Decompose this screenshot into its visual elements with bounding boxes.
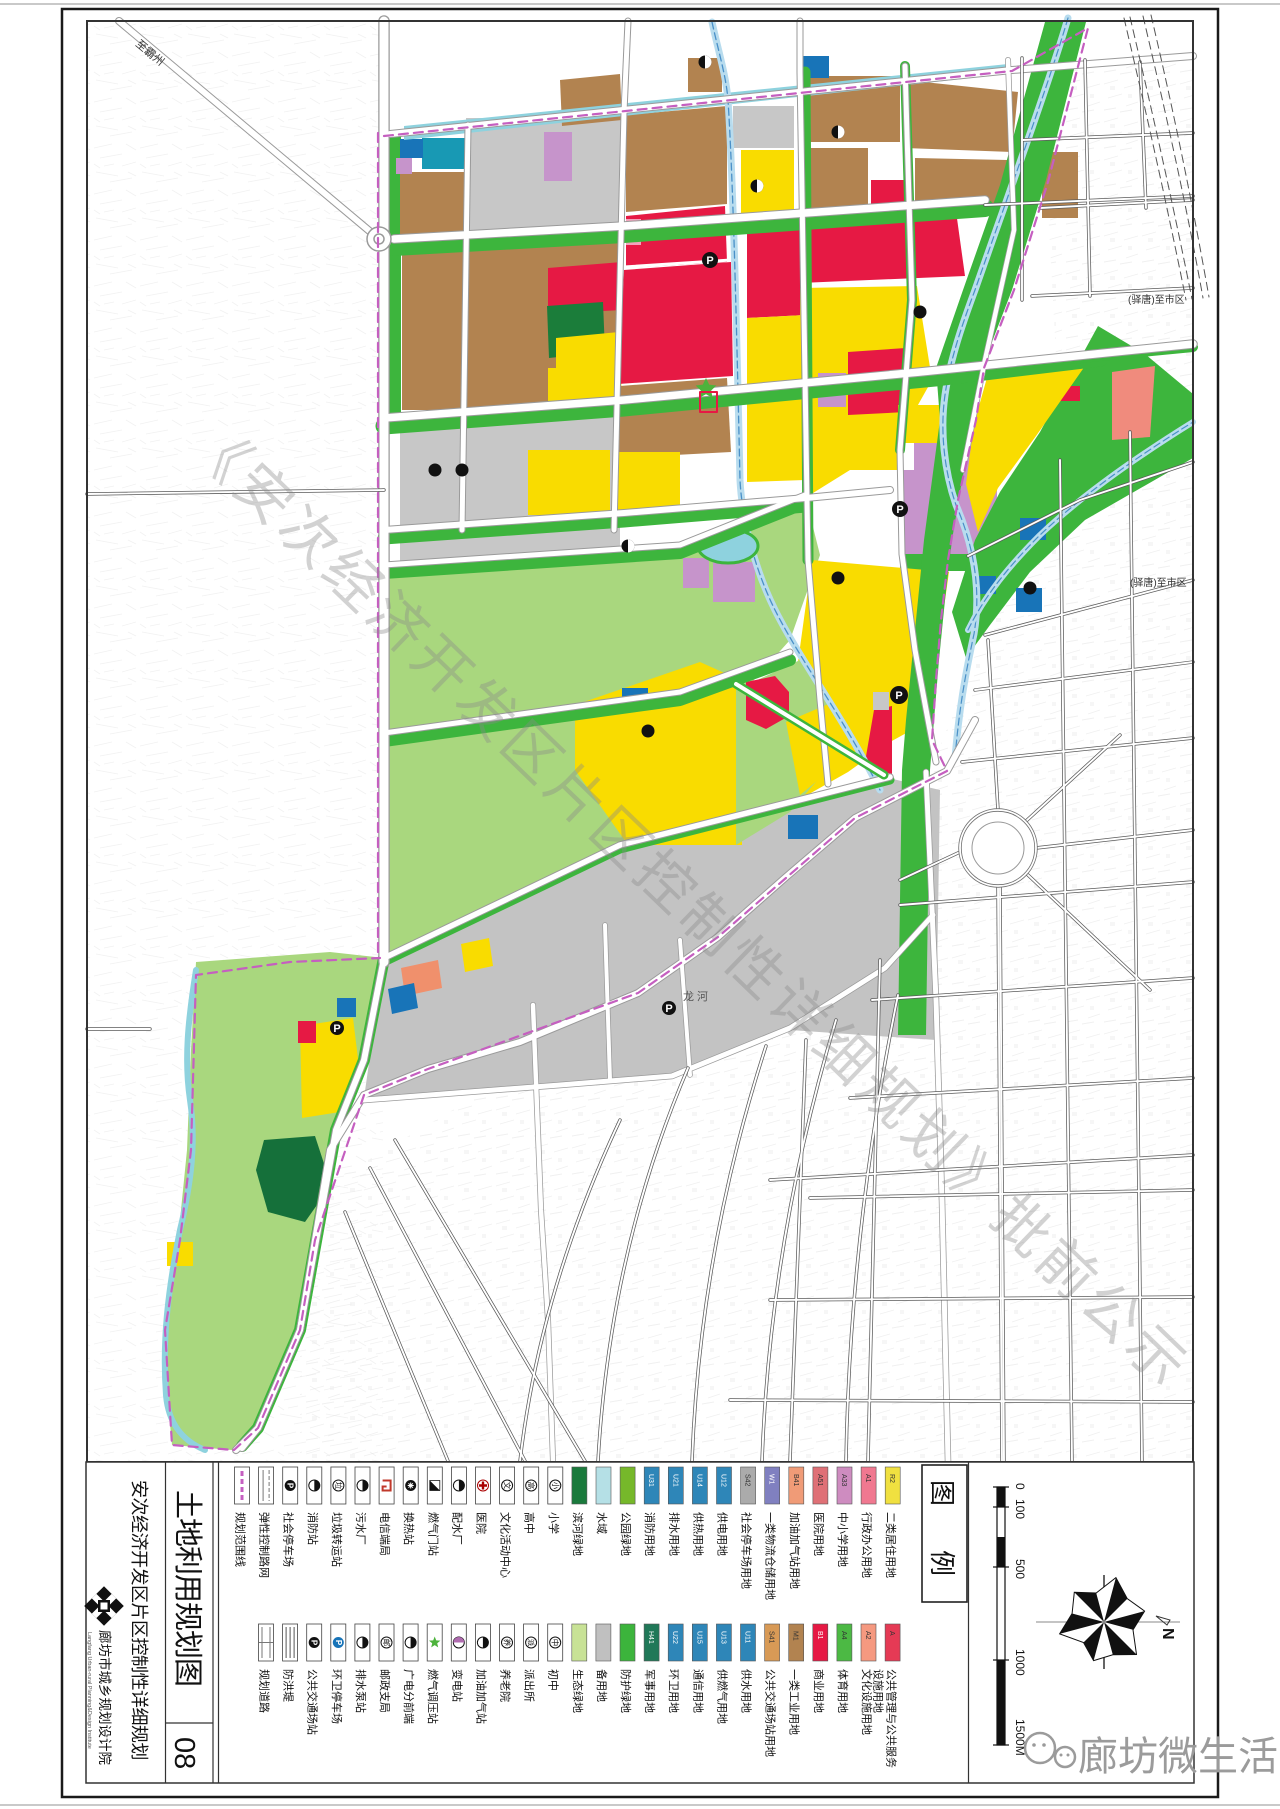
svg-text:规划范围线: 规划范围线	[234, 1512, 248, 1567]
svg-text:H41: H41	[647, 1631, 654, 1644]
svg-text:高中: 高中	[523, 1512, 537, 1534]
svg-text:廊坊微生活: 廊坊微生活	[1078, 1734, 1278, 1779]
svg-text:社会停车场: 社会停车场	[282, 1512, 296, 1567]
svg-text:养老院: 养老院	[499, 1669, 513, 1702]
svg-text:P: P	[706, 255, 713, 267]
svg-text:供燃气用地: 供燃气用地	[715, 1669, 729, 1724]
svg-text:广电分前端: 广电分前端	[402, 1669, 416, 1724]
svg-text:B41: B41	[792, 1474, 799, 1487]
svg-text:公共交通场站用地: 公共交通场站用地	[764, 1669, 778, 1757]
svg-text:体育用地: 体育用地	[836, 1669, 850, 1713]
svg-text:环卫停车场: 环卫停车场	[330, 1669, 344, 1724]
svg-text:初中: 初中	[547, 1669, 561, 1691]
svg-text:文: 文	[503, 1482, 513, 1490]
svg-text:电信端局: 电信端局	[378, 1512, 391, 1556]
svg-text:Langfang Urban-rural Planning&: Langfang Urban-rural Planning&Design Ins…	[86, 1632, 92, 1749]
svg-text:U21: U21	[671, 1474, 678, 1487]
svg-text:医院: 医院	[475, 1512, 489, 1534]
svg-text:P: P	[333, 1023, 340, 1035]
svg-text:供电用地: 供电用地	[716, 1512, 730, 1556]
svg-text:公共管理与公共服务: 公共管理与公共服务	[885, 1669, 899, 1768]
svg-text:军事用地: 军事用地	[643, 1669, 656, 1713]
svg-text:P: P	[334, 1640, 343, 1646]
svg-text:消防用地: 消防用地	[643, 1512, 657, 1556]
svg-text:(驿唐)至市区: (驿唐)至市区	[1130, 576, 1187, 589]
svg-text:公共交通场站: 公共交通场站	[306, 1669, 320, 1735]
svg-text:垃: 垃	[334, 1482, 344, 1490]
svg-text:消防站: 消防站	[306, 1512, 320, 1545]
svg-text:换热站: 换热站	[402, 1512, 416, 1545]
svg-text:通信用地: 通信用地	[691, 1669, 704, 1713]
svg-text:R2: R2	[888, 1474, 895, 1483]
svg-text:社会停车场用地: 社会停车场用地	[740, 1512, 754, 1589]
svg-text:安次经济开发区片区控制性详细规划: 安次经济开发区片区控制性详细规划	[129, 1480, 149, 1760]
svg-text:A2: A2	[864, 1631, 871, 1640]
svg-text:小学: 小学	[547, 1512, 561, 1534]
svg-text:A33: A33	[840, 1474, 847, 1487]
svg-text:污水厂: 污水厂	[354, 1512, 367, 1545]
svg-text:一类物流仓储用地: 一类物流仓储用地	[764, 1512, 778, 1600]
svg-text:生态绿地: 生态绿地	[571, 1669, 585, 1713]
svg-text:派: 派	[527, 1639, 536, 1647]
svg-text:派出所: 派出所	[523, 1669, 537, 1702]
svg-text:土地利用规划图: 土地利用规划图	[171, 1490, 204, 1686]
svg-text:P: P	[310, 1640, 319, 1646]
svg-text:环卫用地: 环卫用地	[667, 1669, 680, 1713]
svg-text:(驿唐)至市区: (驿唐)至市区	[1128, 293, 1185, 306]
svg-text:高: 高	[527, 1482, 537, 1490]
svg-text:W1: W1	[768, 1474, 775, 1485]
svg-text:龙 河: 龙 河	[683, 990, 708, 1003]
svg-text:水域: 水域	[595, 1512, 608, 1534]
svg-text:滨河绿地: 滨河绿地	[571, 1512, 585, 1556]
svg-text:U22: U22	[671, 1631, 678, 1644]
svg-text:防洪堤: 防洪堤	[282, 1669, 296, 1702]
svg-text:加油加气站用地: 加油加气站用地	[788, 1512, 802, 1589]
svg-text:燃气调压站: 燃气调压站	[426, 1669, 440, 1724]
svg-text:U15: U15	[695, 1631, 702, 1644]
svg-text:P: P	[896, 504, 903, 516]
svg-text:图: 图	[927, 1480, 957, 1506]
svg-text:防护绿地: 防护绿地	[619, 1669, 633, 1713]
svg-text:商业用地: 商业用地	[812, 1669, 826, 1713]
svg-text:U11: U11	[744, 1631, 751, 1643]
svg-text:A51: A51	[816, 1474, 823, 1487]
svg-text:供热用地: 供热用地	[691, 1512, 705, 1556]
svg-text:P: P	[895, 690, 902, 702]
svg-text:垃圾转运站: 垃圾转运站	[330, 1512, 344, 1567]
svg-text:排水用地: 排水用地	[667, 1512, 681, 1556]
svg-text:配水厂: 配水厂	[450, 1512, 463, 1545]
svg-text:U31: U31	[647, 1474, 654, 1487]
svg-text:中: 中	[551, 1639, 561, 1647]
svg-text:A4: A4	[840, 1631, 847, 1640]
svg-text:100: 100	[1013, 1499, 1027, 1519]
svg-text:公园绿地: 公园绿地	[619, 1512, 633, 1556]
svg-text:二类居住用地: 二类居住用地	[884, 1512, 898, 1578]
svg-text:例: 例	[927, 1550, 957, 1576]
svg-text:M1: M1	[792, 1631, 799, 1641]
svg-text:中小学用地: 中小学用地	[836, 1512, 850, 1567]
svg-text:规划道路: 规划道路	[258, 1669, 272, 1713]
svg-text:小: 小	[551, 1482, 560, 1490]
svg-text:变电站: 变电站	[450, 1669, 464, 1702]
svg-text:A1: A1	[864, 1474, 871, 1483]
svg-text:A: A	[888, 1631, 895, 1636]
svg-text:P: P	[665, 1003, 672, 1015]
svg-text:500: 500	[1013, 1559, 1027, 1579]
svg-text:08: 08	[168, 1737, 200, 1769]
svg-text:U14: U14	[695, 1474, 702, 1487]
svg-text:1000: 1000	[1013, 1649, 1027, 1676]
svg-text:文化活动中心: 文化活动中心	[499, 1512, 513, 1578]
svg-text:排水泵站: 排水泵站	[354, 1669, 368, 1713]
svg-text:邮政支局: 邮政支局	[378, 1669, 392, 1713]
svg-text:B1: B1	[816, 1631, 823, 1640]
svg-text:加油加气站: 加油加气站	[474, 1669, 488, 1724]
svg-text:P: P	[286, 1483, 295, 1489]
svg-text:行政办公用地: 行政办公用地	[860, 1512, 874, 1578]
svg-text:一类工业用地: 一类工业用地	[788, 1669, 802, 1735]
svg-text:廊坊市城乡规划设计院: 廊坊市城乡规划设计院	[97, 1630, 113, 1765]
svg-text:弹性控制路网: 弹性控制路网	[258, 1512, 272, 1578]
svg-text:S41: S41	[768, 1631, 775, 1644]
svg-text:S42: S42	[744, 1474, 751, 1487]
svg-text:U13: U13	[719, 1631, 726, 1644]
svg-text:N: N	[1159, 1628, 1176, 1640]
svg-text:U12: U12	[720, 1474, 727, 1487]
svg-text:医院用地: 医院用地	[812, 1512, 826, 1556]
svg-text:供水用地: 供水用地	[740, 1669, 754, 1713]
svg-text:邮: 邮	[382, 1639, 392, 1647]
svg-text:0: 0	[1013, 1483, 1027, 1490]
svg-text:燃气门站: 燃气门站	[426, 1512, 440, 1556]
svg-text:养: 养	[503, 1639, 513, 1647]
svg-text:备用地: 备用地	[595, 1669, 609, 1702]
svg-text:设施用地: 设施用地	[872, 1669, 885, 1713]
